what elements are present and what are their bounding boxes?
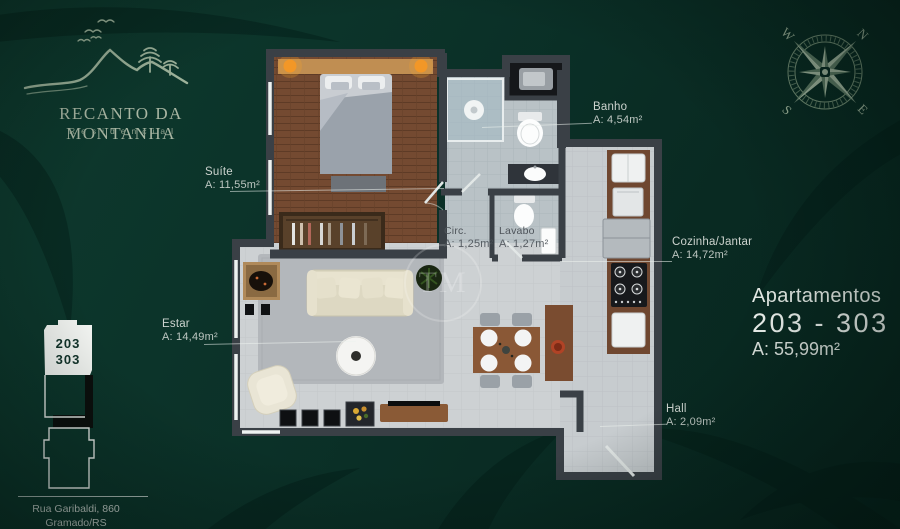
key-plan: 203 303 [36,318,100,496]
lavabo-toilet [514,195,535,228]
room-name: Suíte [205,165,260,179]
fridge [603,219,650,258]
address-line1: Rua Garibaldi, 860 [6,502,146,516]
page: RECANTO DA MONTANHA Residencial [0,0,900,529]
kitchen-sink-2 [612,313,645,347]
key-plan-dark-section [53,375,93,428]
compass-s: S [779,102,795,118]
utility-shaft [507,60,565,98]
key-plan-unit-203: 203 [56,336,81,351]
room-label-cozinha: Cozinha/Jantar A: 14,72m² [672,235,752,262]
room-label-hall: Hall A: 2,09m² [666,402,716,429]
room-name: Circ. [444,225,494,238]
compass-n: N [854,26,872,44]
room-area: A: 14,49m² [162,331,218,344]
kitchen-island [545,305,573,381]
unit-info-numbers: 203 - 303 [752,308,889,338]
room-name: Hall [666,402,716,416]
unit-info-title: Apartamentos [752,285,889,307]
compass-w: W [778,25,798,45]
address-line2: Gramado/RS [6,516,146,529]
unit-info: Apartamentos 203 - 303 A: 55,99m² [752,285,889,359]
room-label-circ: Circ. A: 1,25m² [444,225,494,251]
unit-info-area: A: 55,99m² [752,339,889,359]
room-area: A: 11,55m² [205,179,260,192]
toilet [517,112,543,147]
compass-e: E [855,101,871,117]
room-label-lavabo: Lavabo A: 1,27m² [499,225,549,251]
compass-rose-icon: N E S W [760,7,890,137]
key-plan-unit-303: 303 [56,352,81,367]
stove [611,263,647,307]
brand-title: RECANTO DA MONTANHA [10,104,232,144]
birds-icon [78,20,114,41]
room-label-suite: Suíte A: 11,55m² [205,165,260,192]
room-label-banho: Banho A: 4,54m² [593,100,643,127]
shower [447,79,503,141]
address: Rua Garibaldi, 860 Gramado/RS [6,502,146,529]
room-name: Lavabo [499,225,549,238]
address-divider [18,496,148,497]
room-area: A: 1,25m² [444,238,494,251]
room-area: A: 1,27m² [499,238,549,251]
room-name: Banho [593,100,643,114]
brand-subtitle: Residencial [10,126,232,136]
sofa [307,270,413,316]
watermark: TM [404,244,482,322]
room-area: A: 2,09m² [666,416,716,429]
mountain-icon [25,50,187,94]
room-label-estar: Estar A: 14,49m² [162,317,218,344]
room-name: Estar [162,317,218,331]
room-area: A: 4,54m² [593,114,643,127]
room-area: A: 14,72m² [672,249,752,262]
wardrobe [279,212,385,252]
bathroom-sink [508,164,559,184]
pine-trees-icon [139,48,178,75]
leader-line-cozinha [560,261,672,262]
room-name: Cozinha/Jantar [672,235,752,249]
brand-logo-icon [25,12,205,112]
